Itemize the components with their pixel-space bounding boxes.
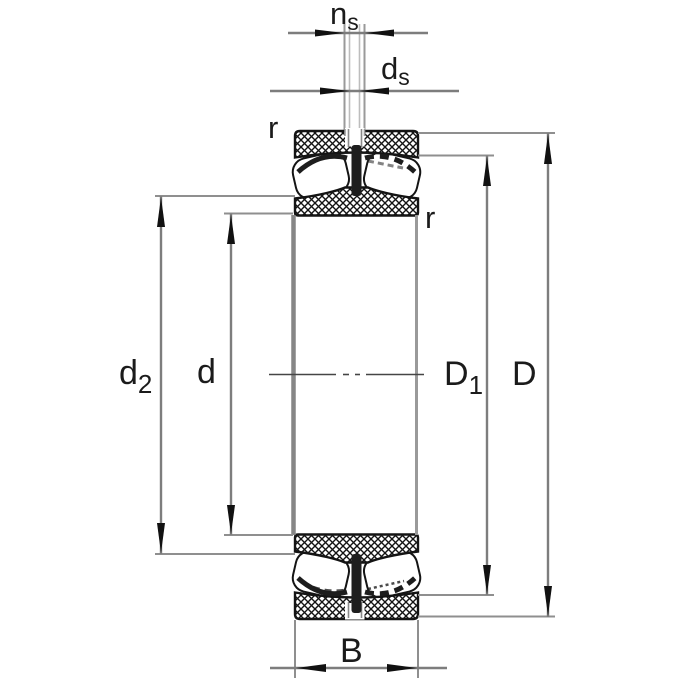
dim-label-D1: D1	[444, 355, 483, 400]
dim-label-ds: ds	[381, 51, 410, 90]
lubrication-slot-lines	[345, 24, 365, 130]
cage-bar-top	[352, 145, 362, 196]
lubrication-hole-top	[345, 128, 365, 147]
dim-label-D: D	[512, 355, 537, 393]
dim-label-d2: d2	[119, 354, 152, 399]
bearing-dimension-drawing: ns ds r r d2 d D1 D B	[0, 0, 680, 680]
dim-label-d: d	[197, 353, 216, 391]
dim-label-r-outer: r	[268, 110, 278, 145]
dim-label-ns: ns	[330, 0, 359, 35]
dim-label-B: B	[340, 632, 363, 670]
dim-label-r-inner: r	[425, 200, 435, 235]
lubrication-hole-bottom	[345, 600, 365, 620]
drawing-canvas: ns ds r r d2 d D1 D B	[0, 0, 680, 680]
